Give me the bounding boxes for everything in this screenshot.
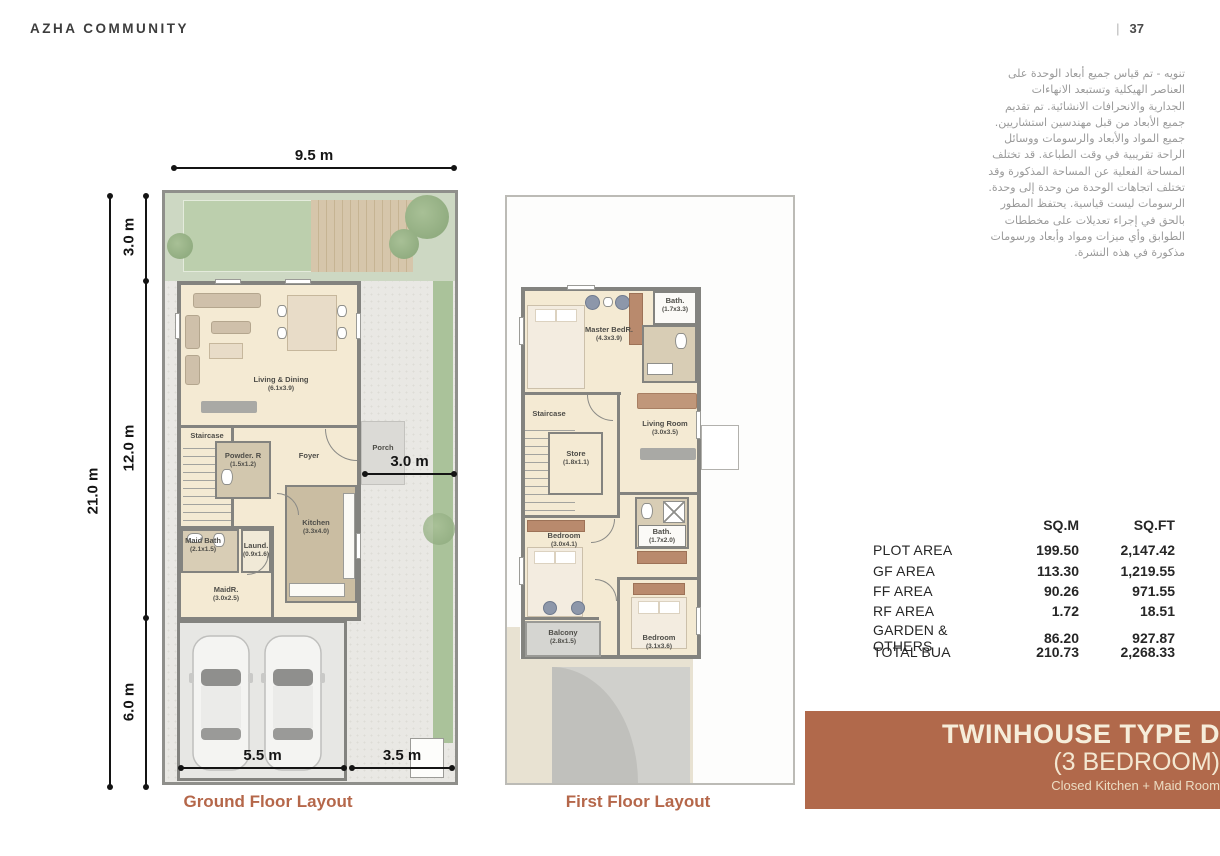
room-label-bath-mid: Bath. (1.7x2.0) [640, 527, 684, 545]
dim-left-total-line: 21.0 m [109, 195, 111, 788]
arabic-disclaimer: تنويه - تم قياس جميع أبعاد الوحدة على ال… [927, 66, 1185, 262]
shower [663, 501, 685, 523]
dim-side-3m: 3.0 m [363, 453, 456, 475]
row-sqm: 1.72 [1005, 603, 1079, 619]
window-mark [519, 557, 524, 585]
wall [617, 577, 701, 580]
room-size: (1.7x3.3) [653, 306, 697, 314]
room-label-foyer: Foyer [283, 451, 335, 461]
room-size: (2.1x1.5) [181, 546, 225, 554]
banner-tagline: Closed Kitchen + Maid Room [805, 778, 1220, 793]
dim-bottom-right-label: 3.5 m [350, 747, 454, 764]
room-name: Bath. [666, 296, 685, 305]
first-floor-plan: Master BedR. (4.3x3.9) Bath. (1.7x3.3) S… [505, 195, 795, 785]
room-name: Bedroom [548, 531, 581, 540]
row-label: PLOT AREA [873, 542, 1005, 558]
table-row: RF AREA 1.72 18.51 [873, 601, 1175, 621]
row-sqm: 90.26 [1005, 583, 1079, 599]
sofa [637, 393, 697, 409]
room-size: (6.1x3.9) [235, 385, 327, 393]
dim-bottom-3-5m: 3.5 m [350, 747, 454, 769]
armchair [185, 355, 200, 385]
room-name: Bath. [653, 527, 672, 536]
page-number: |37 [1116, 21, 1144, 36]
row-sqft: 971.55 [1079, 583, 1175, 599]
room-label-bedroom-right: Bedroom (3.1x3.6) [627, 633, 691, 651]
header-sqm: SQ.M [1005, 517, 1079, 533]
kitchen-stove-counter [289, 583, 345, 597]
wall [525, 515, 620, 518]
room-label-living: Living Room (3.0x3.5) [633, 419, 697, 437]
room-name: Laund. [244, 541, 269, 550]
dim-dot [143, 784, 149, 790]
dining-chair [337, 305, 347, 317]
dining-chair [277, 327, 287, 339]
dim-side-label: 3.0 m [363, 453, 456, 470]
wardrobe [637, 551, 687, 564]
chair [585, 295, 600, 310]
room-size: (3.0x2.5) [195, 595, 257, 603]
room-size: (1.5x1.2) [217, 461, 269, 469]
wardrobe [633, 583, 685, 595]
wall [617, 392, 620, 518]
room-name: Living Room [642, 419, 687, 428]
chair [543, 601, 557, 615]
wall [271, 526, 274, 619]
dining-table [287, 295, 337, 351]
sofa [193, 293, 261, 308]
room-label-bath-top: Bath. (1.7x3.3) [653, 296, 697, 314]
page-number-separator: | [1116, 21, 1119, 36]
room-size: (3.0x3.5) [633, 429, 697, 437]
room-name: Foyer [299, 451, 319, 460]
room-label-staircase: Staircase [179, 431, 235, 441]
tree [423, 513, 455, 545]
ground-floor-caption: Ground Floor Layout [110, 792, 426, 812]
table-row: PLOT AREA 199.50 2,147.42 [873, 540, 1175, 560]
row-sqm: 210.73 [1005, 644, 1079, 660]
header-sqft: SQ.FT [1079, 517, 1175, 533]
vanity [647, 363, 673, 375]
brochure-page: AZHA COMMUNITY |37 تنويه - تم قياس جميع … [0, 0, 1220, 856]
dim-left-segments-line: 3.0 m 12.0 m 6.0 m [145, 195, 147, 788]
bed [527, 305, 585, 389]
tree [389, 229, 419, 259]
dim-dot [143, 193, 149, 199]
room-name: Porch [372, 443, 393, 452]
dim-bottom-5-5m: 5.5 m [179, 747, 346, 769]
room-size: (1.7x2.0) [640, 537, 684, 545]
brand-title: AZHA COMMUNITY [30, 21, 189, 36]
room-name: Maid Bath [185, 536, 221, 545]
window-mark [285, 279, 311, 284]
room-name: Powder. R [225, 451, 261, 460]
room-name: MaidR. [214, 585, 239, 594]
room-name: Balcony [548, 628, 577, 637]
dining-chair [277, 305, 287, 317]
hedge-strip [433, 281, 453, 743]
room-name: Master BedR. [585, 325, 633, 334]
coffee-table [209, 343, 243, 359]
room-size: (2.8x1.5) [527, 638, 599, 646]
room-size: (3.0x4.1) [533, 541, 595, 549]
sofa [211, 321, 251, 334]
dim-left-c-label: 6.0 m [121, 683, 138, 721]
window-mark [215, 279, 241, 284]
tree [167, 233, 193, 259]
dim-dot [107, 784, 113, 790]
room-label-store: Store (1.8x1.1) [551, 449, 601, 467]
wall [617, 577, 620, 655]
first-floor-caption: First Floor Layout [480, 792, 796, 812]
banner-title: TWINHOUSE TYPE D [805, 720, 1220, 749]
toilet [221, 469, 233, 485]
room-size: (3.1x3.6) [627, 643, 691, 651]
room-size: (0.9x1.6) [239, 551, 273, 559]
table-row: FF AREA 90.26 971.55 [873, 581, 1175, 601]
room-label-balcony: Balcony (2.8x1.5) [527, 628, 599, 646]
room-size: (1.8x1.1) [551, 459, 601, 467]
row-sqft: 2,147.42 [1079, 542, 1175, 558]
dim-left-total-label: 21.0 m [85, 468, 102, 515]
window-mark [567, 285, 595, 290]
dim-top-line [172, 167, 456, 169]
room-label-living-dining: Living & Dining (6.1x3.9) [235, 375, 327, 393]
side-table [603, 297, 613, 307]
page-number-value: 37 [1130, 21, 1144, 36]
room-name: Staircase [532, 409, 565, 418]
row-sqft: 2,268.33 [1079, 644, 1175, 660]
area-table-header: SQ.M SQ.FT [873, 513, 1175, 537]
row-sqm: 113.30 [1005, 563, 1079, 579]
row-sqft: 1,219.55 [1079, 563, 1175, 579]
table-row: TOTAL BUA 210.73 2,268.33 [873, 642, 1175, 662]
row-sqm: 199.50 [1005, 542, 1079, 558]
unit-type-banner: TWINHOUSE TYPE D (3 BEDROOM) Closed Kitc… [805, 711, 1220, 809]
window-mark [356, 313, 361, 339]
room-label-powder: Powder. R (1.5x1.2) [217, 451, 269, 469]
wall [617, 492, 701, 495]
dim-dot [143, 278, 149, 284]
row-sqft: 18.51 [1079, 603, 1175, 619]
dining-chair [337, 327, 347, 339]
room-label-staircase: Staircase [521, 409, 577, 419]
row-label: GF AREA [873, 563, 1005, 579]
window-mark [696, 607, 701, 635]
tv-console [640, 448, 696, 460]
room-label-maid-bath: Maid Bath (2.1x1.5) [181, 536, 225, 554]
dim-dot [143, 615, 149, 621]
room-name: Staircase [190, 431, 223, 440]
toilet [641, 503, 653, 519]
chair [571, 601, 585, 615]
dim-left-a-label: 3.0 m [121, 218, 138, 256]
room-name: Store [566, 449, 585, 458]
window-mark [519, 317, 524, 345]
room-size: (3.3x4.0) [287, 528, 345, 536]
dim-bottom-right-line [350, 767, 454, 769]
dim-left-b-label: 12.0 m [121, 425, 138, 472]
room-label-kitchen: Kitchen (3.3x4.0) [287, 518, 345, 536]
room-label-bedroom-left: Bedroom (3.0x4.1) [533, 531, 595, 549]
chair [615, 295, 630, 310]
banner-subtitle: (3 BEDROOM) [805, 749, 1220, 776]
area-table: SQ.M SQ.FT PLOT AREA 199.50 2,147.42 GF … [873, 513, 1175, 662]
row-label: TOTAL BUA [873, 644, 1005, 660]
tv-console [201, 401, 257, 413]
row-label: RF AREA [873, 603, 1005, 619]
room-name: Kitchen [302, 518, 330, 527]
room-label-maid-room: MaidR. (3.0x2.5) [195, 585, 257, 603]
toilet [675, 333, 687, 349]
window-mark [175, 313, 180, 339]
garden-lawn [183, 200, 329, 272]
dim-bottom-left-label: 5.5 m [179, 747, 346, 764]
room-name: Living & Dining [254, 375, 309, 384]
exterior-pad [701, 425, 739, 470]
dim-bottom-left-line [179, 767, 346, 769]
dim-top-label: 9.5 m [172, 147, 456, 164]
room-name: Bedroom [643, 633, 676, 642]
room-label-porch: Porch [361, 443, 405, 453]
wall [181, 425, 357, 428]
dim-dot [107, 193, 113, 199]
dim-side-line [363, 473, 456, 475]
table-row: GF AREA 113.30 1,219.55 [873, 560, 1175, 580]
dim-top-9-5m: 9.5 m [172, 147, 456, 169]
room-size: (4.3x3.9) [567, 335, 651, 343]
table-row: GARDEN & OTHERS 86.20 927.87 [873, 622, 1175, 642]
wall [525, 617, 599, 620]
ground-floor-plan: Living & Dining (6.1x3.9) Staircase Foye… [162, 190, 458, 785]
row-label: FF AREA [873, 583, 1005, 599]
room-label-master: Master BedR. (4.3x3.9) [567, 325, 651, 343]
armchair [185, 315, 200, 349]
window-mark [356, 533, 361, 559]
room-label-laundry: Laund. (0.9x1.6) [239, 541, 273, 559]
